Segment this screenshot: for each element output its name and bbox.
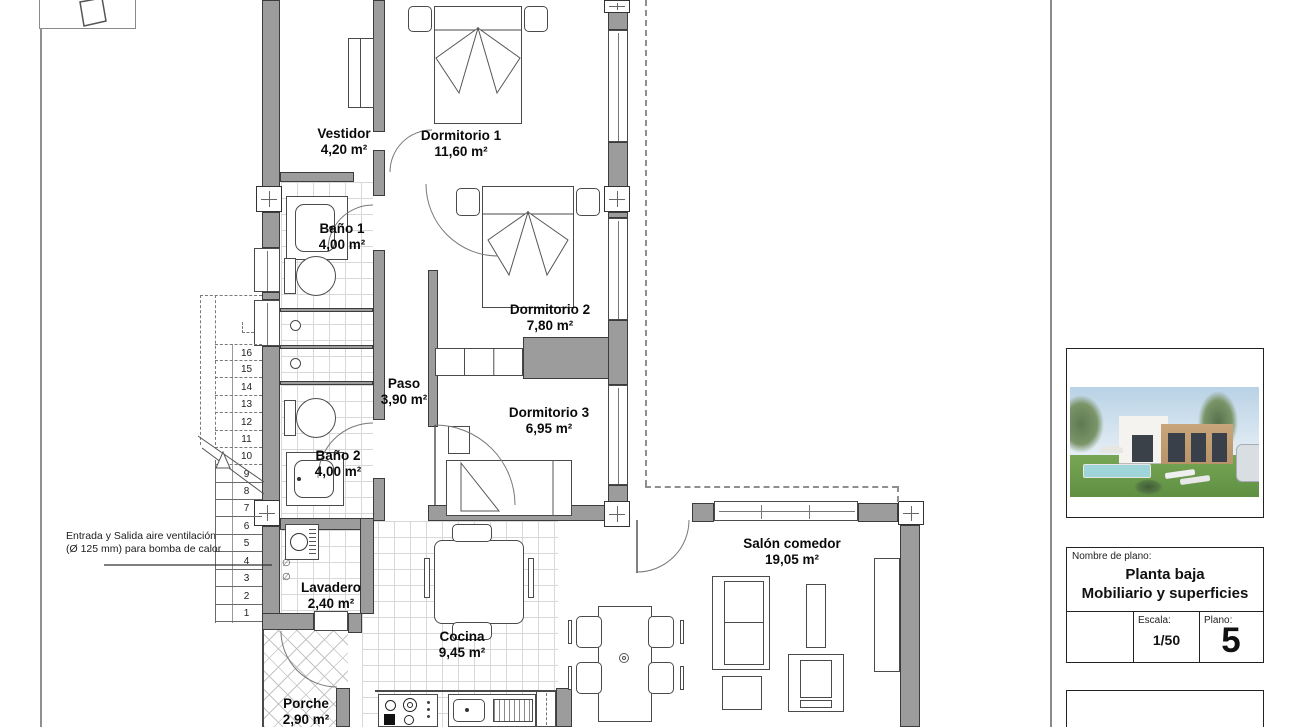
- stair-step: 1: [215, 605, 262, 622]
- armchair: [788, 654, 844, 712]
- column-marker: [604, 186, 630, 212]
- wall-segment: [262, 613, 314, 630]
- room-label-salon: Salón comedor19,05 m²: [743, 536, 841, 567]
- nightstand: [576, 188, 600, 216]
- wall-segment: [280, 172, 354, 182]
- toilet-bowl-bath2: [296, 398, 336, 438]
- wall-segment: [262, 526, 280, 614]
- pool: [1083, 464, 1151, 478]
- wall-segment: [262, 346, 280, 502]
- plan-title-line2: Mobiliario y superficies: [1067, 584, 1263, 603]
- stair-number: 9: [244, 469, 250, 480]
- plano-number: 5: [1200, 623, 1262, 658]
- toilet-bowl-bath1: [296, 256, 336, 296]
- dining-chair-arm: [680, 666, 684, 690]
- house-window: [1132, 435, 1153, 461]
- stair-number: 1: [244, 608, 250, 619]
- stair-step: 11: [215, 431, 262, 448]
- wall-segment: [262, 212, 280, 248]
- dining-chair: [576, 616, 602, 648]
- toilet-bath1: [284, 258, 296, 294]
- stairs-outline-dashed: [200, 295, 201, 445]
- bed-dormitorio-3: [446, 460, 572, 516]
- wall-segment: [280, 345, 373, 349]
- wall-segment: [556, 688, 572, 727]
- stair-number: 8: [244, 486, 250, 497]
- wall-segment: [360, 518, 374, 614]
- stair-number: 14: [241, 382, 252, 393]
- window-dormitorio1: [608, 30, 628, 142]
- stair-step: 12: [215, 414, 262, 431]
- room-label-porche: Porche2,90 m²: [283, 696, 330, 727]
- roof-overhang-dashed: [645, 0, 647, 486]
- stair-step: 15: [215, 361, 262, 378]
- stair-number: 3: [244, 573, 250, 584]
- stair-step: 13: [215, 396, 262, 413]
- stair-number: 7: [244, 503, 250, 514]
- window-west-1: [254, 248, 280, 292]
- dining-chair-arm: [568, 666, 572, 690]
- window-west-2: [254, 300, 280, 346]
- room-label-dormitorio2: Dormitorio 27,80 m²: [510, 302, 590, 333]
- ventilation-annotation: Entrada y Salida aire ventilación (Ø 125…: [66, 530, 246, 556]
- room-label-dormitorio3: Dormitorio 36,95 m²: [509, 405, 589, 436]
- toilet-bath2: [284, 400, 296, 436]
- plan-title: Planta baja Mobiliario y superficies: [1067, 565, 1263, 603]
- room-label-bano2: Baño 24,00 m²: [315, 448, 362, 479]
- dining-chair-arm: [568, 620, 572, 644]
- roof-overhang-dashed: [645, 486, 898, 488]
- title-block-bottom-row: Escala: 1/50 Plano: 5: [1067, 611, 1263, 663]
- shower-drain: [290, 358, 301, 369]
- stair-number: 11: [241, 434, 251, 445]
- dining-table-center-dot: [622, 656, 626, 660]
- sofa: [712, 576, 770, 670]
- column-marker: [256, 186, 282, 212]
- plan-title-line1: Planta baja: [1067, 565, 1263, 584]
- stair-step: 3: [215, 570, 262, 587]
- sideboard: [874, 558, 900, 672]
- garden-bush: [1134, 479, 1162, 494]
- house-render-photo: [1070, 387, 1259, 497]
- stove: [378, 694, 438, 727]
- stair-number: 10: [241, 451, 252, 462]
- stairs-outline-dashed: [200, 295, 262, 296]
- bed-dormitorio-2: [482, 186, 574, 308]
- bedside-table: [448, 426, 470, 454]
- room-label-bano1: Baño 14,00 m²: [319, 221, 366, 252]
- wall-segment: [858, 503, 898, 522]
- house-window: [1168, 433, 1185, 462]
- dining-table: [598, 606, 652, 722]
- title-column-divider: [1050, 0, 1052, 727]
- stairs-up-arrow: [242, 322, 254, 333]
- window-dormitorio3: [608, 385, 628, 485]
- stair-step: 16: [215, 344, 262, 361]
- column-marker: [604, 0, 630, 13]
- side-table: [722, 676, 762, 710]
- title-cell-empty: [1067, 612, 1133, 663]
- room-label-lavadero: Lavadero2,40 m²: [301, 580, 361, 611]
- sheet-frame-line: [40, 28, 42, 727]
- escala-value: 1/50: [1134, 632, 1199, 648]
- wall-segment: [373, 478, 385, 521]
- wall-segment: [608, 142, 628, 188]
- counter-edge-line: [375, 690, 556, 692]
- drain-symbol: ∅: [282, 572, 291, 583]
- window-salon: [714, 501, 858, 521]
- kitchen-chair-arm: [528, 558, 534, 598]
- laundry-door-panel: [314, 611, 348, 631]
- bed-dormitorio-1: [434, 6, 522, 124]
- stair-step: 9: [215, 466, 262, 483]
- wardrobe-dormitorio-3: [435, 348, 523, 376]
- counter-dashed-divider: [546, 693, 547, 725]
- wall-segment: [336, 688, 350, 727]
- stair-number: 16: [241, 348, 252, 359]
- stair-number: 13: [241, 399, 252, 410]
- wall-segment: [262, 292, 280, 300]
- wall-segment: [348, 613, 362, 633]
- room-label-cocina: Cocina9,45 m²: [439, 629, 486, 660]
- door-arc-entrance: [637, 520, 689, 572]
- porch-edge-line: [262, 630, 264, 727]
- washing-machine: [285, 524, 319, 560]
- window-dormitorio2: [608, 218, 628, 320]
- stair-step: 14: [215, 379, 262, 396]
- nightstand: [408, 6, 432, 32]
- wall-segment: [280, 308, 373, 312]
- plan-name-box: Nombre de plano: Planta baja Mobiliario …: [1066, 547, 1264, 663]
- stair-step: 8: [215, 483, 262, 500]
- plan-name-label: Nombre de plano:: [1072, 551, 1152, 562]
- render-photo-box: [1066, 348, 1264, 518]
- roof-overhang-dashed: [897, 486, 899, 502]
- column-marker: [604, 501, 630, 527]
- nightstand: [524, 6, 548, 32]
- stair-number: 4: [244, 556, 250, 567]
- dining-chair: [576, 662, 602, 694]
- wall-segment: [523, 337, 611, 379]
- stair-step: 2: [215, 588, 262, 605]
- wall-segment: [692, 503, 714, 522]
- title-cell-plano: Plano: 5: [1199, 612, 1262, 663]
- kitchen-chair-arm: [424, 558, 430, 598]
- wall-segment: [900, 525, 920, 727]
- sheet-frame-box: [39, 0, 136, 29]
- wardrobe-vestidor: [348, 38, 374, 108]
- room-label-dormitorio1: Dormitorio 111,60 m²: [421, 128, 501, 159]
- stair-number: 12: [241, 417, 252, 428]
- room-label-paso: Paso3,90 m²: [381, 376, 428, 407]
- stair-step: 10: [215, 448, 262, 465]
- wall-segment: [373, 150, 385, 196]
- umbrella: [1100, 446, 1123, 453]
- title-cell-escala: Escala: 1/50: [1133, 612, 1199, 663]
- house-window: [1212, 433, 1227, 462]
- room-label-vestidor: Vestidor4,20 m²: [317, 126, 370, 157]
- car: [1236, 444, 1259, 481]
- wall-segment: [262, 0, 280, 188]
- shelf-unit: [806, 584, 826, 648]
- kitchen-table: [434, 540, 524, 624]
- dining-chair-arm: [680, 620, 684, 644]
- escala-label: Escala:: [1138, 615, 1171, 626]
- column-marker: [898, 501, 924, 525]
- empty-title-box: [1066, 690, 1264, 727]
- dining-chair: [648, 662, 674, 694]
- dining-chair: [648, 616, 674, 648]
- stair-step: 7: [215, 500, 262, 517]
- wall-segment: [373, 0, 385, 132]
- shower-drain: [290, 320, 301, 331]
- stair-number: 15: [241, 364, 252, 375]
- stair-number: 2: [244, 591, 250, 602]
- house-window: [1191, 433, 1206, 462]
- kitchen-chair: [452, 524, 492, 542]
- wall-segment: [608, 320, 628, 385]
- nightstand: [456, 188, 480, 216]
- kitchen-sink: [448, 694, 536, 727]
- wall-segment: [280, 381, 373, 385]
- drain-symbol: ∅: [282, 558, 291, 569]
- floor-plan-sheet: 16 15 14 13 12 11 10 9 8 7 6 5 4 3 2 1 ∅…: [0, 0, 1290, 727]
